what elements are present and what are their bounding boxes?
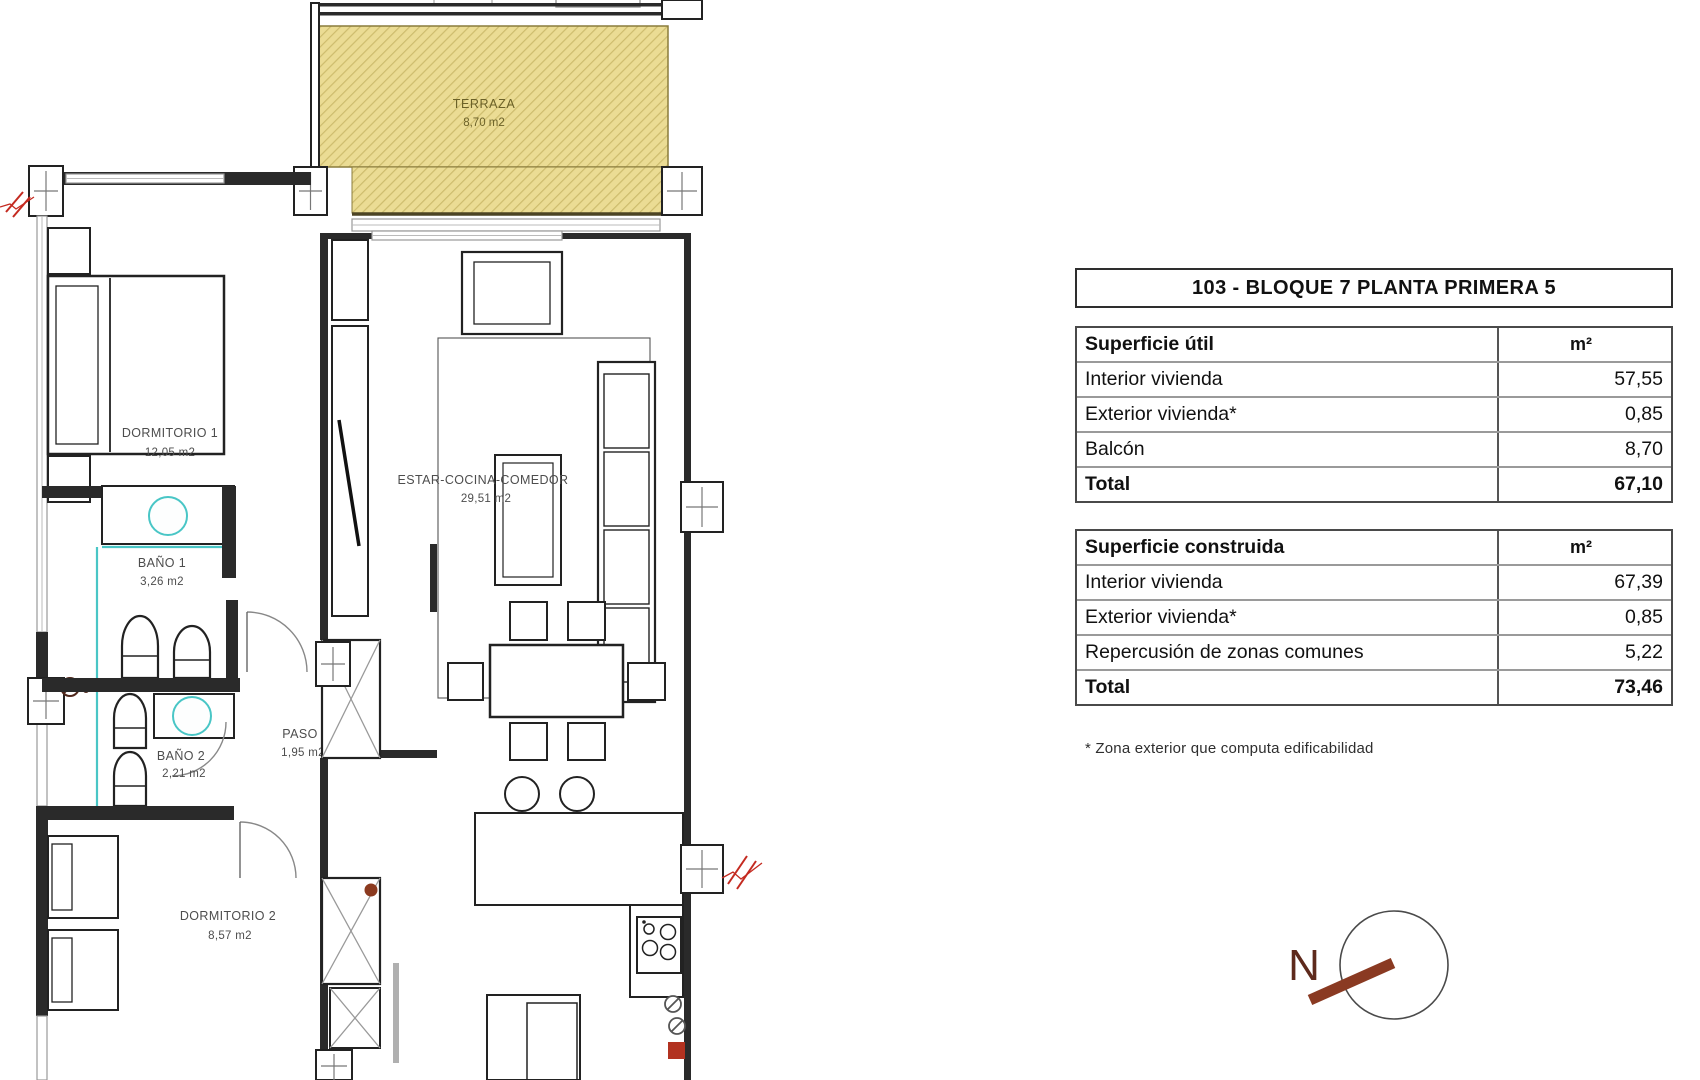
north-compass: N: [1250, 890, 1480, 1080]
room-label-bano1: BAÑO 1: [138, 556, 186, 570]
nightstand: [48, 228, 90, 274]
dorm1-furniture: [48, 228, 224, 502]
stool: [560, 777, 594, 811]
compass-needle-icon: [1310, 963, 1393, 1000]
row-label: Interior vivienda: [1077, 566, 1497, 599]
chair: [568, 602, 605, 640]
room-label-bano2: BAÑO 2: [157, 749, 205, 763]
sink: [149, 497, 187, 535]
room-area-dormitorio1: 12,05 m2: [145, 447, 195, 459]
row-label: Balcón: [1077, 433, 1497, 466]
total-value: 73,46: [1497, 671, 1671, 704]
room-area-bano2: 2,21 m2: [162, 768, 206, 780]
table-header-row: Superficie construida m²: [1077, 531, 1671, 564]
right-wall: [681, 233, 723, 1080]
chair: [628, 663, 665, 700]
toilet: [114, 694, 146, 748]
shaft-upper: [316, 640, 380, 758]
row-value: 0,85: [1497, 398, 1671, 431]
row-value: 5,22: [1497, 636, 1671, 669]
column-marker: [662, 0, 702, 19]
superficie-util-table: Superficie útil m² Interior vivienda 57,…: [1075, 326, 1673, 503]
shaft-lower: [316, 878, 399, 1080]
total-value: 67,10: [1497, 468, 1671, 501]
row-label: Exterior vivienda*: [1077, 398, 1497, 431]
chair: [510, 723, 547, 760]
door-arc: [240, 822, 296, 878]
table-row: Interior vivienda 67,39: [1077, 564, 1671, 599]
row-label: Interior vivienda: [1077, 363, 1497, 396]
north-letter: N: [1288, 941, 1320, 990]
balcony-door: [352, 219, 660, 231]
superficie-construida-table: Superficie construida m² Interior vivien…: [1075, 529, 1673, 706]
accent-dot: [365, 884, 378, 897]
chair: [510, 602, 547, 640]
sliding-door: [393, 963, 399, 1063]
unit-title: 103 - BLOQUE 7 PLANTA PRIMERA 5: [1075, 268, 1673, 308]
chair: [568, 723, 605, 760]
kitchen: [475, 813, 683, 1080]
red-marker: [668, 1042, 685, 1059]
room-area-bano1: 3,26 m2: [140, 576, 184, 588]
compass-circle: [1340, 911, 1448, 1019]
chair: [448, 663, 483, 700]
total-label: Total: [1077, 671, 1497, 704]
table-row: Balcón 8,70: [1077, 431, 1671, 466]
bidet: [114, 752, 146, 806]
table-header-unit: m²: [1497, 328, 1671, 361]
terraza-area-label: 8,70 m2: [463, 117, 505, 129]
table-row: Interior vivienda 57,55: [1077, 361, 1671, 396]
table-total-row: Total 67,10: [1077, 466, 1671, 501]
row-label: Repercusión de zonas comunes: [1077, 636, 1497, 669]
footnote: * Zona exterior que computa edificabilid…: [1085, 740, 1374, 757]
dorm1-top-wall: [29, 166, 311, 216]
kitchen-island: [487, 995, 580, 1080]
armchair: [462, 252, 562, 334]
sink: [173, 697, 211, 735]
table-total-row: Total 73,46: [1077, 669, 1671, 704]
floor-plan: TERRAZA 8,70 m2: [0, 0, 770, 1080]
room-label-estar: ESTAR-COCINA-COMEDOR: [398, 473, 569, 487]
terraza-area: TERRAZA 8,70 m2: [318, 26, 668, 214]
dining-table: [490, 645, 623, 717]
total-label: Total: [1077, 468, 1497, 501]
room-area-dormitorio2: 8,57 m2: [208, 930, 252, 942]
unit-title-text: 103 - BLOQUE 7 PLANTA PRIMERA 5: [1192, 277, 1556, 300]
table-row: Repercusión de zonas comunes 5,22: [1077, 634, 1671, 669]
utility-glyphs: [665, 996, 685, 1059]
bed: [48, 930, 118, 1010]
row-value: 8,70: [1497, 433, 1671, 466]
table-header-label: Superficie útil: [1077, 328, 1497, 361]
stool: [505, 777, 539, 811]
toilet: [122, 616, 158, 678]
door-arc: [247, 612, 307, 672]
table-row: Exterior vivienda* 0,85: [1077, 396, 1671, 431]
table-header-unit: m²: [1497, 531, 1671, 564]
break-symbol-right: [722, 856, 762, 889]
living-top-wall: [327, 231, 687, 240]
plan-sheet: TERRAZA 8,70 m2: [0, 0, 1700, 1080]
row-label: Exterior vivienda*: [1077, 601, 1497, 634]
row-value: 67,39: [1497, 566, 1671, 599]
room-label-dormitorio2: DORMITORIO 2: [180, 909, 276, 923]
wardrobe: [332, 240, 368, 616]
table-header-row: Superficie útil m²: [1077, 328, 1671, 361]
room-label-paso: PASO: [282, 727, 317, 741]
room-area-estar: 29,51 m2: [461, 493, 511, 505]
bed: [48, 836, 118, 918]
room-label-dormitorio1: DORMITORIO 1: [122, 426, 218, 440]
terraza-name: TERRAZA: [453, 97, 516, 111]
bano2: [42, 694, 234, 820]
bano1: [42, 486, 307, 813]
row-value: 57,55: [1497, 363, 1671, 396]
room-area-paso: 1,95 m2: [281, 747, 325, 759]
row-value: 0,85: [1497, 601, 1671, 634]
info-panel: 103 - BLOQUE 7 PLANTA PRIMERA 5 Superfic…: [1075, 268, 1673, 706]
bidet: [174, 626, 210, 678]
table-header-label: Superficie construida: [1077, 531, 1497, 564]
table-row: Exterior vivienda* 0,85: [1077, 599, 1671, 634]
kitchen-counter: [475, 813, 683, 905]
left-wall: [36, 216, 48, 1080]
